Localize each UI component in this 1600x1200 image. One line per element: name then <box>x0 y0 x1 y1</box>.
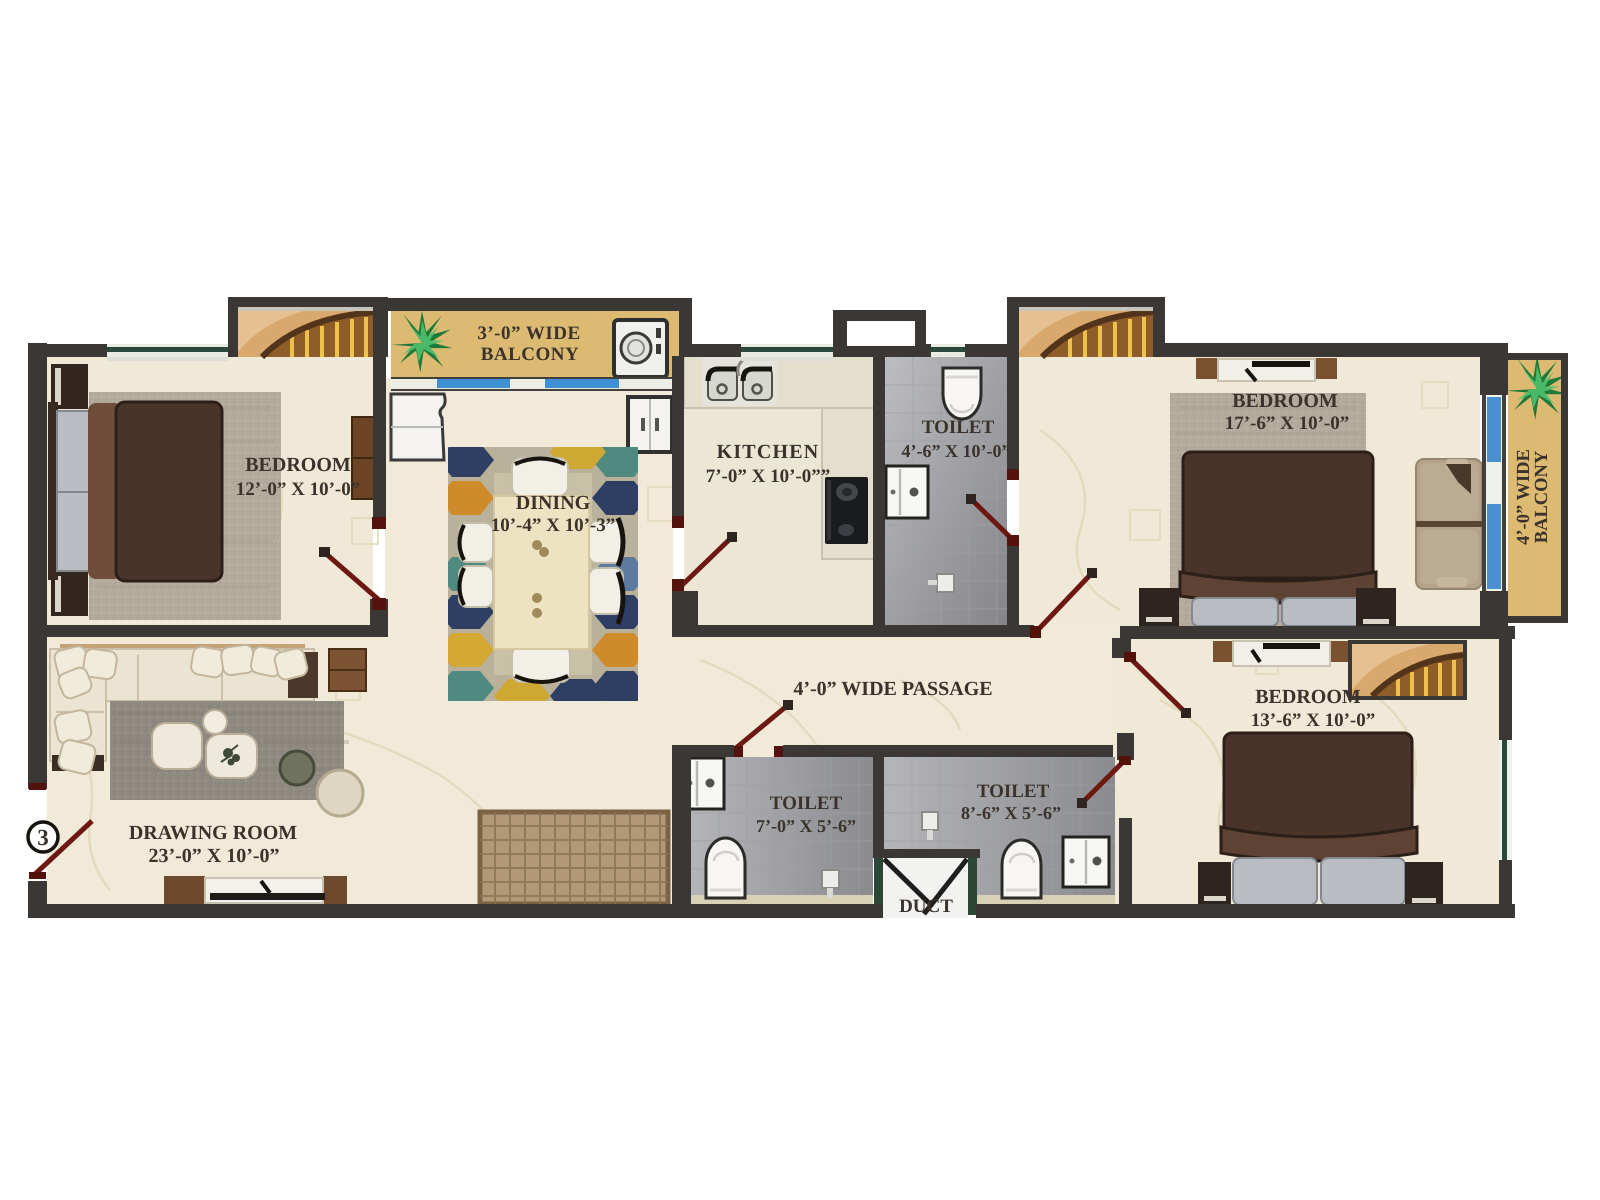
svg-text:KITCHEN: KITCHEN <box>717 441 820 463</box>
svg-text:7’-0” X 10’-0””: 7’-0” X 10’-0”” <box>706 466 831 487</box>
svg-text:4’-0” WIDE PASSAGE: 4’-0” WIDE PASSAGE <box>793 678 992 700</box>
svg-text:7’-0” X 5’-6”: 7’-0” X 5’-6” <box>756 816 856 836</box>
svg-text:DRAWING ROOM: DRAWING ROOM <box>129 822 297 844</box>
svg-text:BEDROOM: BEDROOM <box>1232 390 1338 412</box>
svg-text:12’-0” X 10’-0”: 12’-0” X 10’-0” <box>236 479 361 500</box>
svg-text:10’-4” X 10’-3”: 10’-4” X 10’-3” <box>491 515 616 536</box>
svg-text:17’-6” X 10’-0”: 17’-6” X 10’-0” <box>1225 413 1350 434</box>
svg-text:TOILET: TOILET <box>770 793 843 814</box>
svg-text:TOILET: TOILET <box>977 781 1050 802</box>
svg-text:DINING: DINING <box>516 492 591 514</box>
svg-text:DUCT: DUCT <box>899 896 953 917</box>
svg-text:BEDROOM: BEDROOM <box>1255 686 1361 708</box>
svg-text:TOILET: TOILET <box>922 417 995 438</box>
svg-text:4’-0” WIDEBALCONY: 4’-0” WIDEBALCONY <box>1514 449 1552 545</box>
svg-text:4’-6” X 10’-0”: 4’-6” X 10’-0” <box>902 441 1011 461</box>
svg-text:13’-6” X 10’-0”: 13’-6” X 10’-0” <box>1251 710 1376 731</box>
svg-text:BEDROOM: BEDROOM <box>245 454 351 476</box>
svg-text:3: 3 <box>37 825 49 850</box>
svg-text:23’-0” X 10’-0”: 23’-0” X 10’-0” <box>148 845 279 867</box>
svg-text:8’-6” X 5’-6”: 8’-6” X 5’-6” <box>961 803 1061 823</box>
svg-text:BALCONY: BALCONY <box>481 344 580 365</box>
svg-text:3’-0” WIDE: 3’-0” WIDE <box>477 323 580 344</box>
